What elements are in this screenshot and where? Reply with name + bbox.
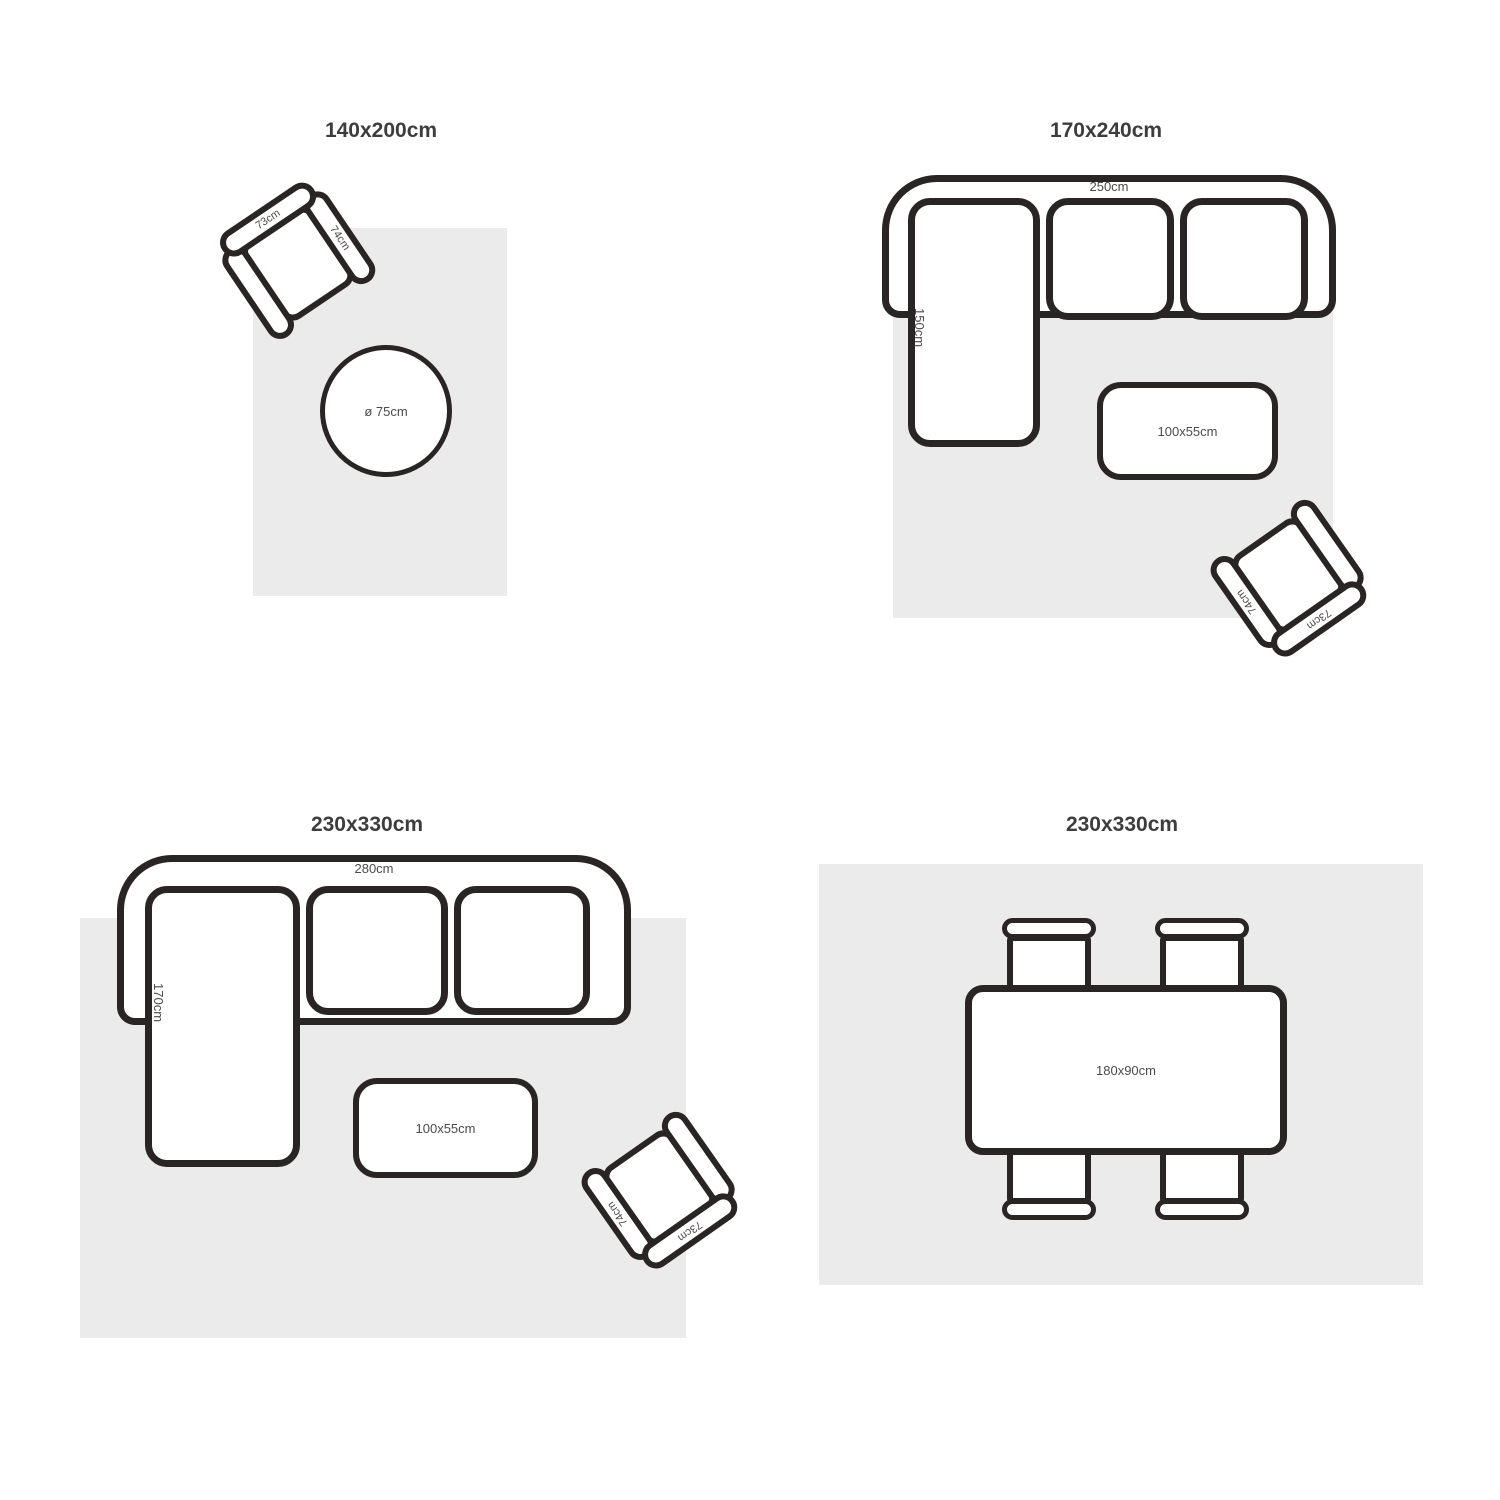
rug-size-title-140x200: 140x200cm	[325, 119, 437, 143]
armchair-back-dimension-label: 73cm	[1304, 606, 1333, 631]
sofa-chaise-length-label: 150cm	[912, 308, 927, 347]
dining-chair-backrest	[1155, 918, 1249, 939]
round-table-diameter-label: ø 75cm	[364, 404, 407, 419]
sofa-width-label: 280cm	[117, 861, 631, 876]
dining-chair-backrest	[1002, 918, 1096, 939]
rug-size-title-230x330-dining: 230x330cm	[1066, 813, 1178, 837]
sofa-seat	[454, 886, 590, 1015]
armchair-arm-dimension-label: 74cm	[327, 223, 352, 252]
dining-table: 180x90cm	[965, 985, 1287, 1155]
sofa-chaise	[145, 886, 300, 1167]
sofa-chaise-length-label: 170cm	[151, 983, 166, 1022]
rug-size-guide-diagram: 140x200cm ø 75cm 74cm 73cm 170x240cm 250…	[0, 0, 1500, 1500]
coffee-table: 100x55cm	[1097, 382, 1278, 480]
dining-table-size-label: 180x90cm	[1096, 1063, 1156, 1078]
dining-chair-backrest	[1155, 1199, 1249, 1220]
rug-size-title-230x330-sofa: 230x330cm	[311, 813, 423, 837]
armchair-arm-dimension-label: 74cm	[1234, 588, 1259, 617]
sofa-width-label: 250cm	[882, 179, 1336, 194]
rug-size-title-170x240: 170x240cm	[1050, 119, 1162, 143]
armchair-back-dimension-label: 73cm	[675, 1218, 704, 1243]
round-side-table: ø 75cm	[320, 345, 452, 477]
sofa-seat	[306, 886, 448, 1015]
armchair-back-dimension-label: 73cm	[254, 207, 283, 232]
sofa-chaise	[908, 198, 1040, 447]
sofa-seat	[1046, 198, 1174, 320]
coffee-table-size-label: 100x55cm	[416, 1121, 476, 1136]
coffee-table-size-label: 100x55cm	[1158, 424, 1218, 439]
sofa-seat	[1180, 198, 1308, 320]
coffee-table: 100x55cm	[353, 1078, 538, 1178]
armchair-arm-dimension-label: 74cm	[605, 1200, 630, 1229]
dining-chair-backrest	[1002, 1199, 1096, 1220]
